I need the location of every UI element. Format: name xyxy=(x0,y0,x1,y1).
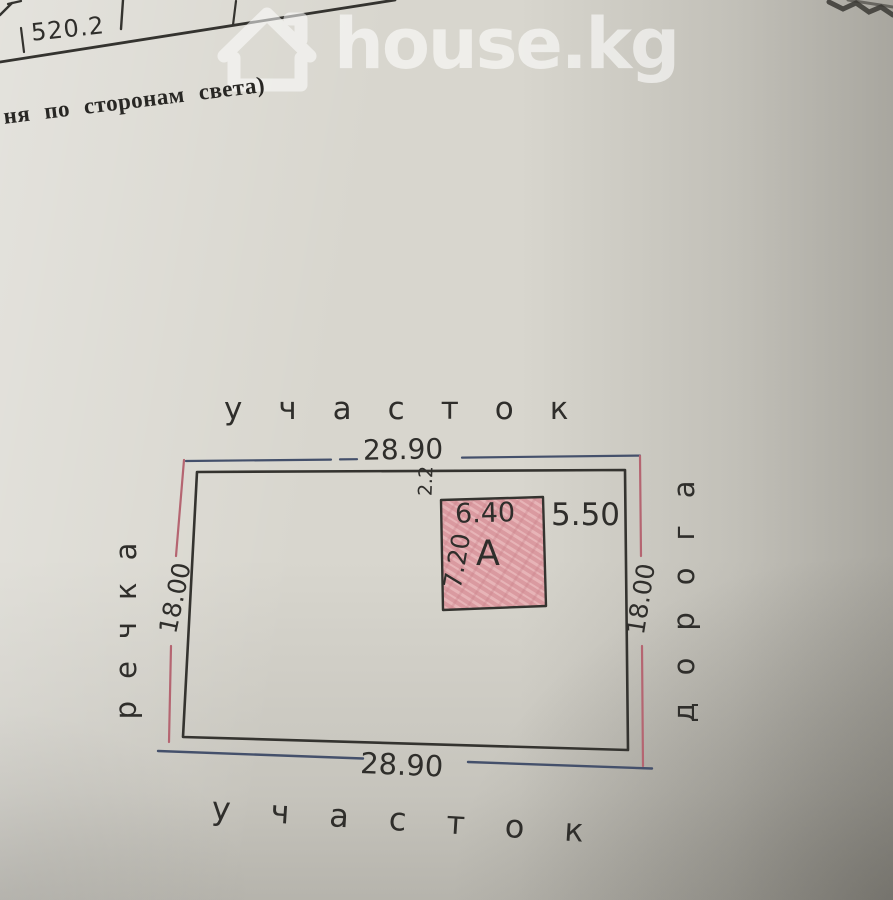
building-gap-right: 5.50 xyxy=(551,497,620,533)
dimension-bottom: 28.90 xyxy=(360,746,444,784)
watermark-brand: house.kg xyxy=(334,1,678,89)
plan-linework xyxy=(0,0,893,900)
plan-label-north: участок xyxy=(224,391,604,427)
plan-label-west: речка xyxy=(109,521,143,720)
corner-scribble xyxy=(829,0,893,15)
building-gap-top: 2.2 xyxy=(414,466,437,497)
plan-label-east: дорога xyxy=(667,454,701,723)
building-width: 6.40 xyxy=(455,497,516,530)
scanned-plan-photo: 520.2 ня по сторонам света) house.kg уча… xyxy=(0,0,893,900)
dimension-top: 28.90 xyxy=(363,432,444,466)
building-designation: А xyxy=(476,534,500,574)
